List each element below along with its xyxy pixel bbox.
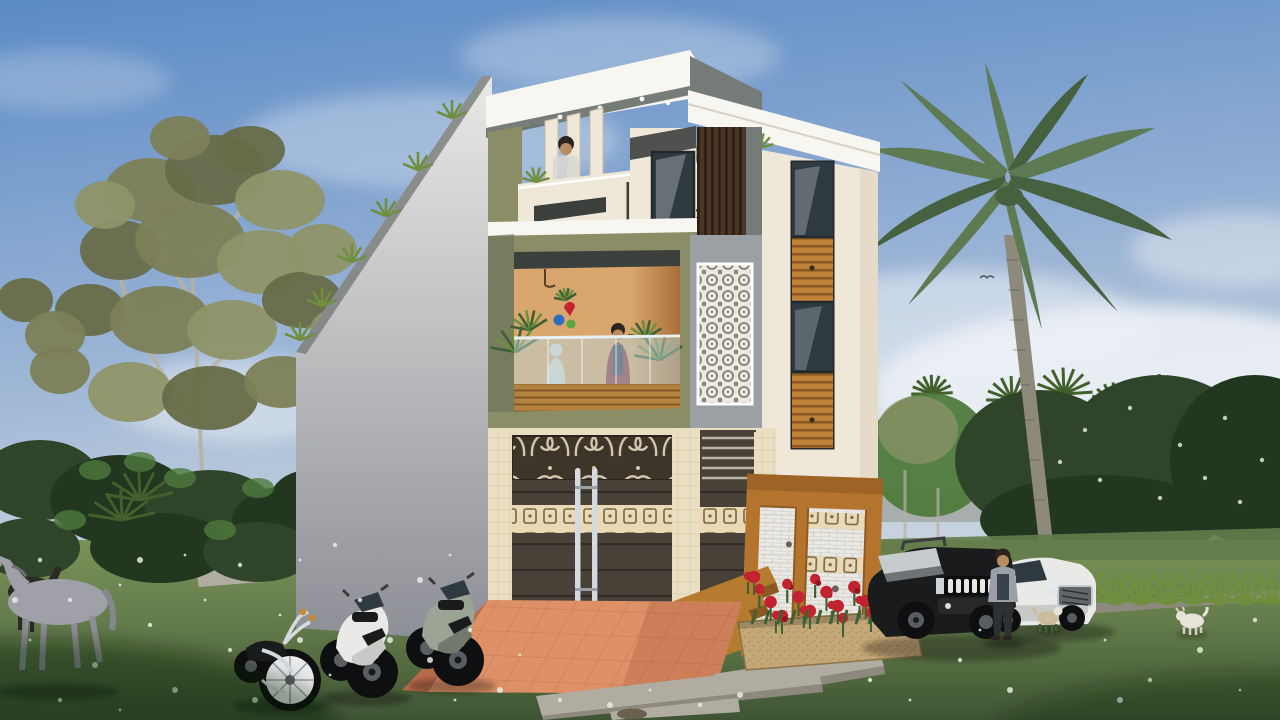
stone-roller <box>617 709 647 720</box>
wood-slat-panel <box>697 127 746 235</box>
scene-render <box>0 0 1280 720</box>
jali-panel <box>698 264 752 404</box>
render-viewport <box>0 0 1280 720</box>
balcony <box>488 218 697 440</box>
balcony-wood-skirt <box>514 384 680 412</box>
window-louver-strip <box>792 162 833 448</box>
jali-strip <box>690 235 762 435</box>
balcony-beam <box>514 250 680 269</box>
balcony-glass-railing <box>514 336 680 384</box>
